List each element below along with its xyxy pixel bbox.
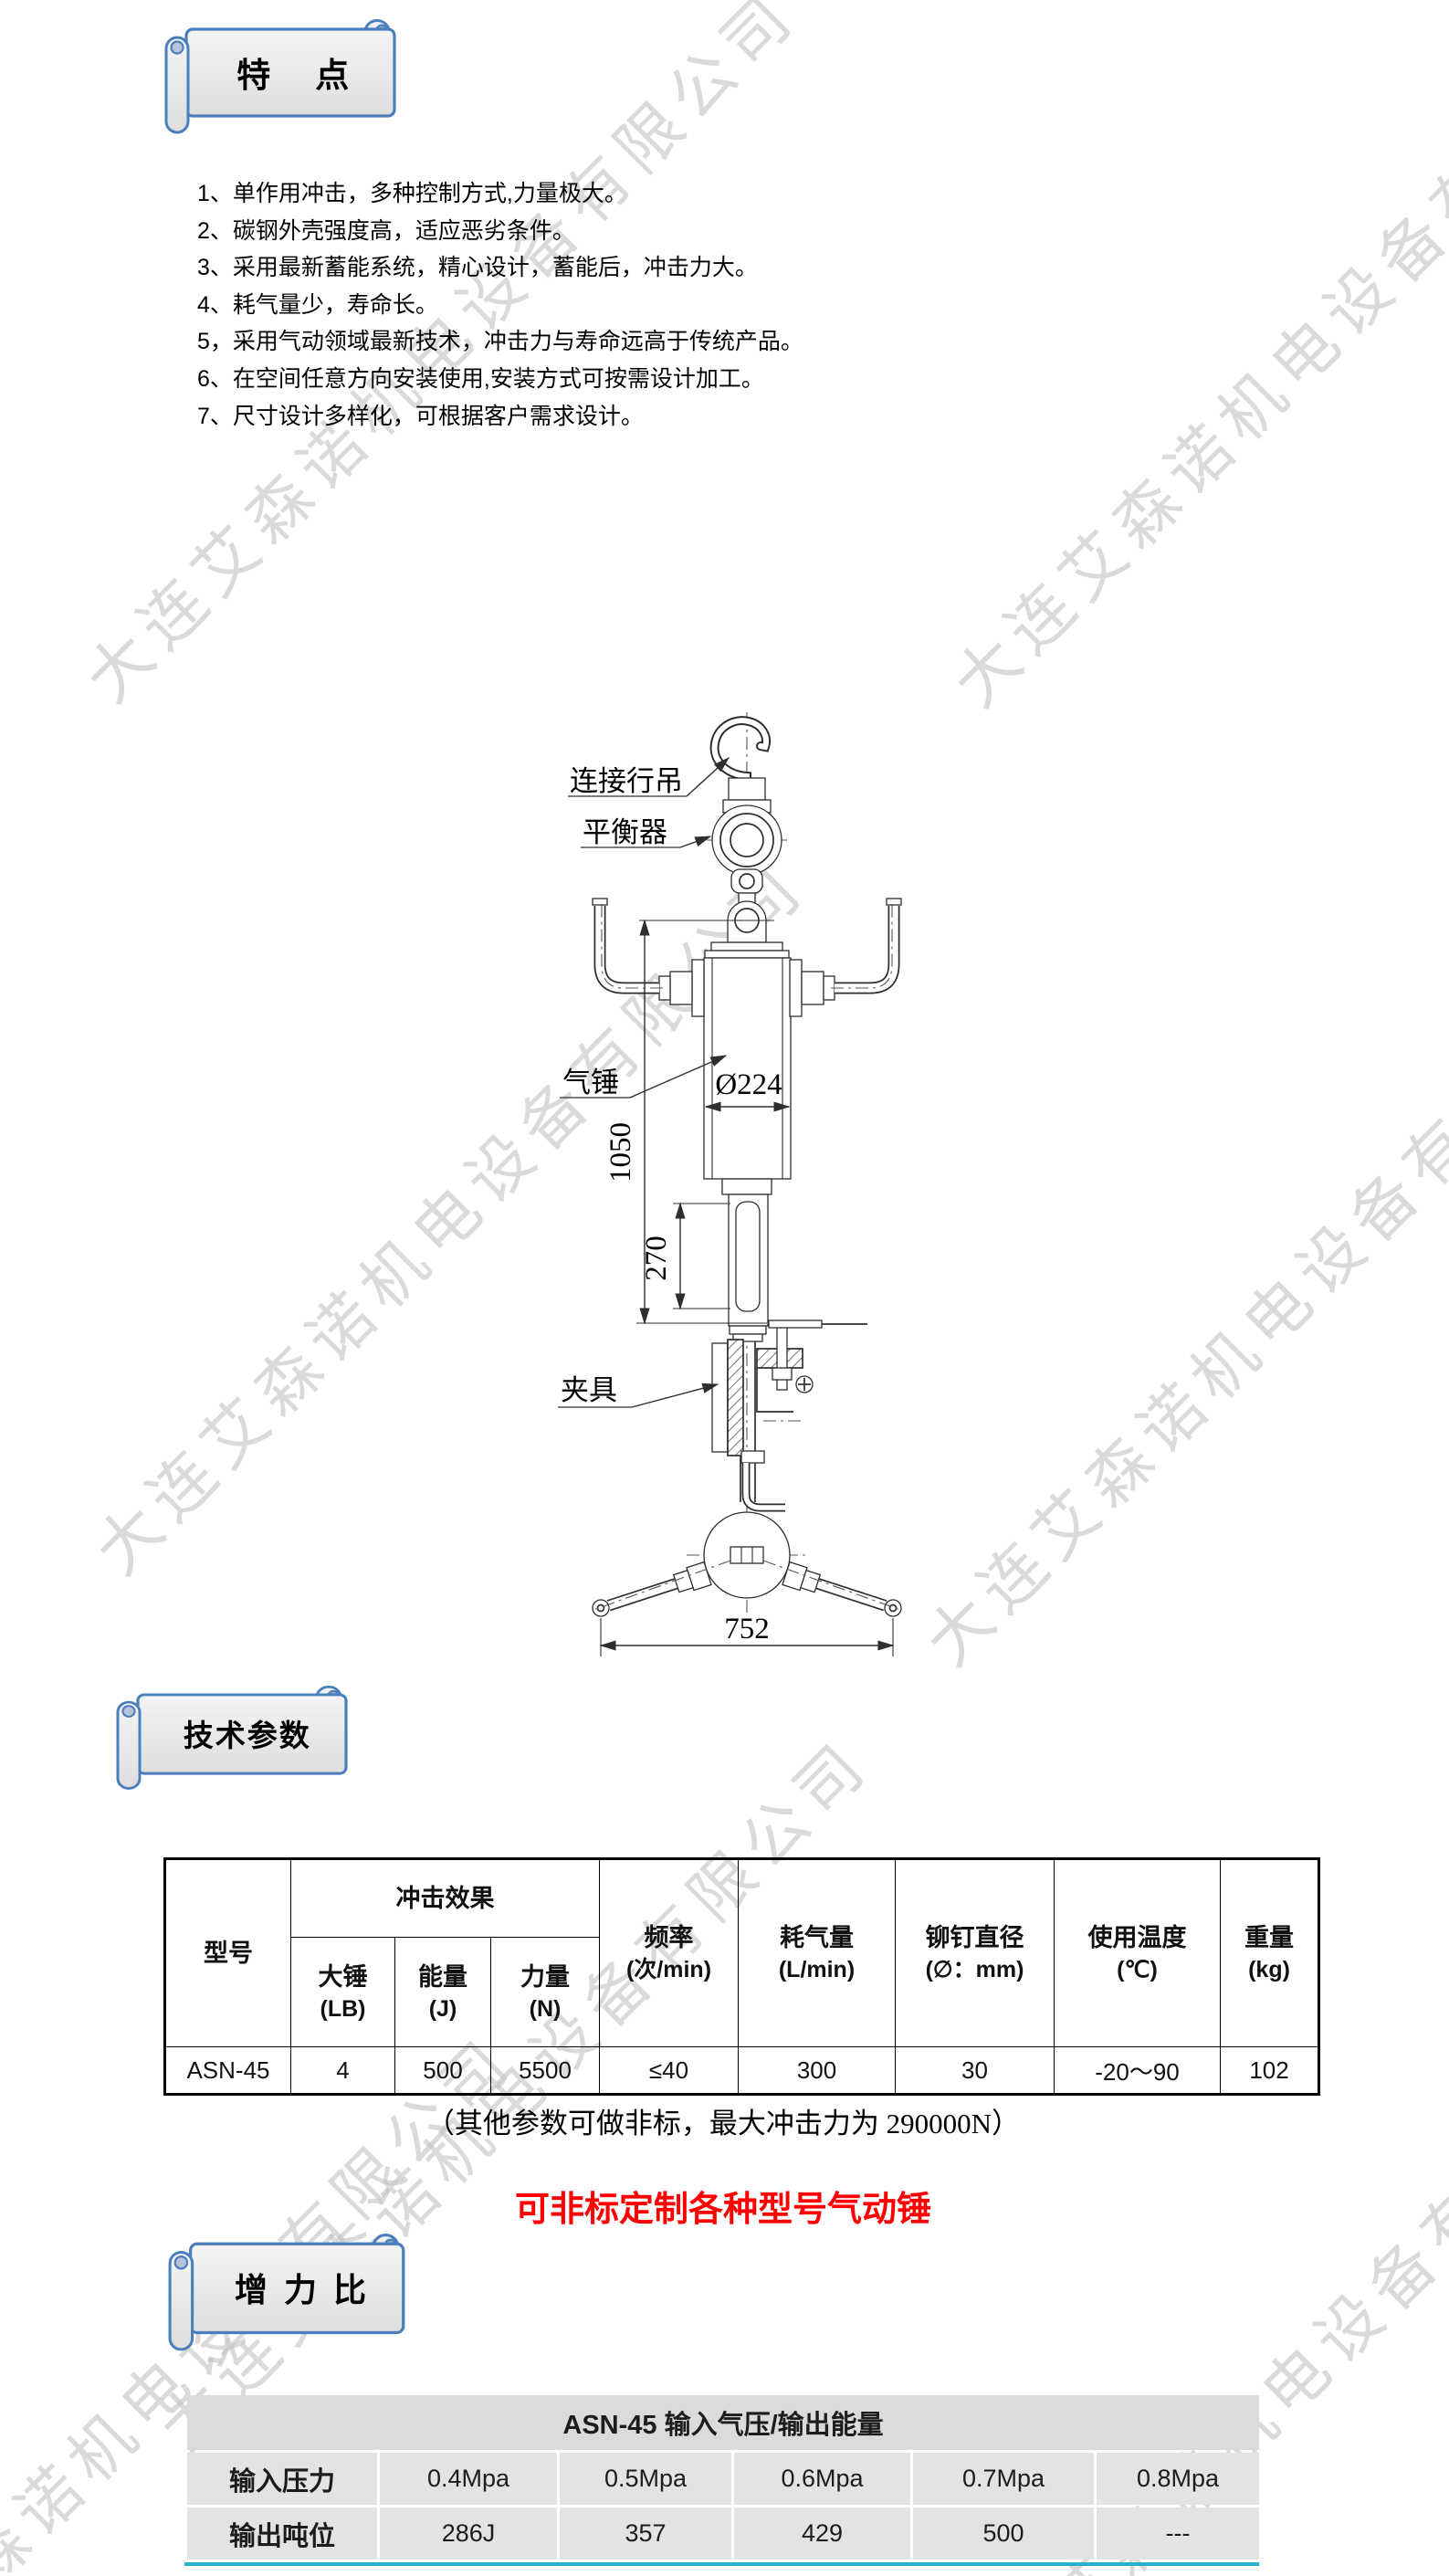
tech-header-frequency-label: 频率 <box>600 1921 738 1954</box>
svg-text:气锤: 气锤 <box>562 1067 619 1099</box>
boost-output-value: 357 <box>560 2508 731 2560</box>
tech-cell-rivet: 30 <box>896 2047 1055 2095</box>
tech-header-temp-label: 使用温度 <box>1055 1921 1220 1954</box>
boost-table-title: ASN-45 输入气压/输出能量 <box>187 2395 1259 2450</box>
tech-cell-force: 5500 <box>491 2047 600 2095</box>
boost-output-value: --- <box>1097 2508 1259 2560</box>
tech-header-energy-unit: (J) <box>395 1993 490 2024</box>
boost-output-row: 输出吨位 286J 357 429 500 --- <box>187 2508 1259 2560</box>
tech-header-weight-label: 重量 <box>1221 1921 1318 1954</box>
svg-text:752: 752 <box>724 1613 770 1645</box>
svg-text:夹具: 夹具 <box>561 1374 617 1406</box>
tech-params-banner-title: 技术参数 <box>145 1693 349 1772</box>
boost-output-value: 429 <box>734 2508 910 2560</box>
boost-output-value: 286J <box>380 2508 557 2560</box>
label-balancer: 平衡器 <box>581 816 710 848</box>
tech-header-air: 耗气量 (L/min) <box>739 1859 896 2047</box>
boost-input-value: 0.7Mpa <box>913 2453 1094 2505</box>
boost-ratio-table: ASN-45 输入气压/输出能量 输入压力 0.4Mpa 0.5Mpa 0.6M… <box>184 2392 1262 2562</box>
boost-ratio-banner-title: 增 力 比 <box>198 2243 406 2332</box>
feature-list: 1、单作用冲击，多种控制方式,力量极大。 2、碳钢外壳强度高，适应恶劣条件。 3… <box>197 175 1165 435</box>
tech-header-rivet-label: 铆钉直径 <box>896 1921 1054 1954</box>
feature-item: 7、尺寸设计多样化，可根据客户需求设计。 <box>197 398 1165 436</box>
dim-270: 270 <box>640 1204 730 1309</box>
tech-cell-temp: -20～90 <box>1055 2047 1221 2095</box>
tech-header-hammer-label: 大锤 <box>291 1961 394 1993</box>
tech-header-force: 力量 (N) <box>491 1938 600 2047</box>
svg-text:连接行吊: 连接行吊 <box>570 765 683 797</box>
boost-output-value: 500 <box>913 2508 1094 2560</box>
tech-header-rivet-unit: (∅：mm) <box>896 1954 1054 1985</box>
dim-752: 752 <box>601 1613 893 1656</box>
tech-header-hammer: 大锤 (LB) <box>291 1938 395 2047</box>
tech-header-hammer-unit: (LB) <box>291 1993 394 2024</box>
feature-item: 3、采用最新蓄能系统，精心设计，蓄能后，冲击力大。 <box>197 249 1165 287</box>
tech-header-energy-label: 能量 <box>395 1961 490 1993</box>
tech-cell-hammer: 4 <box>291 2047 395 2095</box>
tech-header-air-unit: (L/min) <box>739 1954 895 1985</box>
tech-header-temp: 使用温度 (℃) <box>1055 1859 1221 2047</box>
tech-header-impact-group: 冲击效果 <box>291 1859 600 1938</box>
label-hook: 连接行吊 <box>568 758 729 797</box>
tech-header-weight-unit: (kg) <box>1221 1954 1318 1985</box>
svg-text:平衡器: 平衡器 <box>583 816 667 848</box>
tech-cell-weight: 102 <box>1221 2047 1319 2095</box>
feature-item: 6、在空间任意方向安装使用,安装方式可按需设计加工。 <box>197 361 1165 398</box>
tech-cell-freq: ≤40 <box>600 2047 739 2095</box>
tech-header-temp-unit: (℃) <box>1055 1954 1220 1985</box>
tech-cell-model: ASN-45 <box>165 2047 291 2095</box>
boost-input-label: 输入压力 <box>187 2453 377 2505</box>
boost-ratio-banner: 增 力 比 <box>166 2233 414 2354</box>
feature-item: 4、耗气量少，寿命长。 <box>197 287 1165 324</box>
tech-header-frequency-unit: (次/min) <box>600 1954 738 1985</box>
boost-input-row: 输入压力 0.4Mpa 0.5Mpa 0.6Mpa 0.7Mpa 0.8Mpa <box>187 2453 1259 2505</box>
label-hammer: 气锤 <box>560 1056 726 1099</box>
handle-part <box>593 899 704 1016</box>
tech-header-energy: 能量 (J) <box>395 1938 491 2047</box>
custom-order-highlight: 可非标定制各种型号气动锤 <box>146 2181 1300 2231</box>
feature-item: 2、碳钢外壳强度高，适应恶劣条件。 <box>197 213 1165 250</box>
feature-item: 1、单作用冲击，多种控制方式,力量极大。 <box>197 175 1165 213</box>
top-view-part <box>704 1512 790 1598</box>
balancer-part <box>712 805 782 904</box>
tech-header-air-label: 耗气量 <box>739 1921 895 1954</box>
tech-header-force-unit: (N) <box>491 1993 599 2024</box>
svg-text:270: 270 <box>640 1235 673 1281</box>
boost-input-value: 0.6Mpa <box>734 2453 910 2505</box>
boost-output-label: 输出吨位 <box>187 2508 377 2560</box>
svg-text:1050: 1050 <box>604 1122 637 1183</box>
boost-input-value: 0.8Mpa <box>1097 2453 1259 2505</box>
boost-input-value: 0.5Mpa <box>560 2453 731 2505</box>
datasheet-page: 大连艾森诺机电设备有限公司 大连艾森诺机电设备有限公司 大连艾森诺机电设备有限公… <box>0 0 1449 2576</box>
tech-cell-air: 300 <box>739 2047 896 2095</box>
tech-note: （其他参数可做非标，最大冲击力为 290000N） <box>146 2100 1300 2141</box>
clamp-part <box>712 1320 867 1508</box>
bottom-accent-rule <box>184 2562 1259 2566</box>
tech-header-frequency: 频率 (次/min) <box>600 1859 739 2047</box>
tech-data-row: ASN-45 4 500 5500 ≤40 300 30 -20～90 102 <box>165 2047 1319 2095</box>
tech-header-model: 型号 <box>165 1859 291 2047</box>
features-banner: 特 点 <box>163 18 404 137</box>
svg-text:Ø224: Ø224 <box>715 1068 782 1101</box>
tech-params-banner: 技术参数 <box>114 1685 356 1793</box>
feature-item: 5，采用气动领域最新技术，冲击力与寿命远高于传统产品。 <box>197 323 1165 361</box>
tech-cell-energy: 500 <box>395 2047 491 2095</box>
features-banner-title: 特 点 <box>194 27 397 115</box>
technical-drawing: 1050 270 Ø224 752 连接行吊 平衡器 <box>493 708 1004 1662</box>
dim-diameter: Ø224 <box>706 1068 789 1107</box>
tech-header-weight: 重量 (kg) <box>1221 1859 1319 2047</box>
tech-header-rivet: 铆钉直径 (∅：mm) <box>896 1859 1055 2047</box>
tech-header-force-label: 力量 <box>491 1961 599 1993</box>
label-clamp: 夹具 <box>558 1374 718 1407</box>
tech-params-table: 型号 冲击效果 频率 (次/min) 耗气量 (L/min) 铆钉直径 (∅：m… <box>163 1857 1320 2096</box>
boost-input-value: 0.4Mpa <box>380 2453 557 2505</box>
hook-part <box>715 720 771 813</box>
